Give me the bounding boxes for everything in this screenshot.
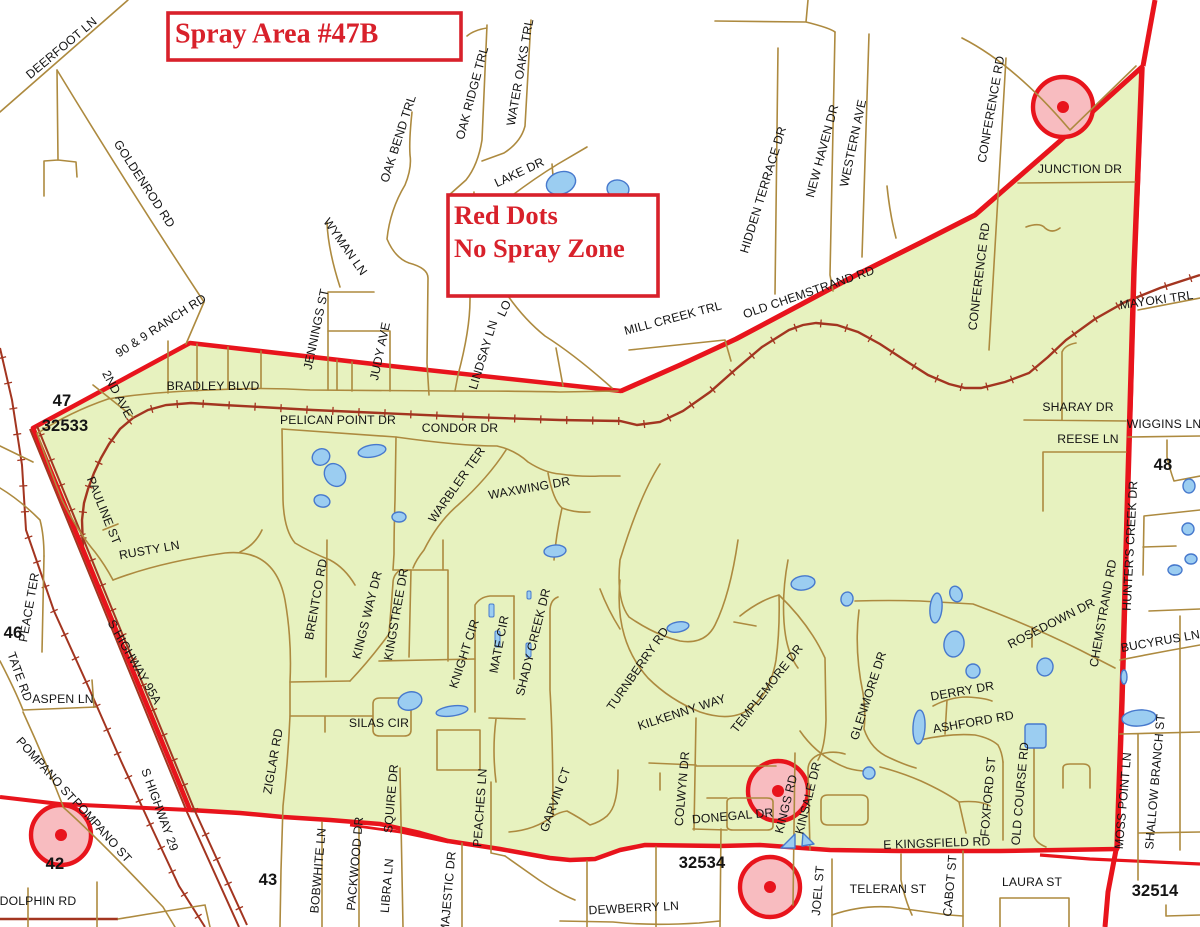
svg-text:CABOT ST: CABOT ST — [940, 854, 959, 917]
svg-text:BRADLEY BLVD: BRADLEY BLVD — [167, 379, 260, 393]
svg-text:OAK BEND TRL: OAK BEND TRL — [377, 93, 418, 184]
svg-text:LAKE DR: LAKE DR — [492, 155, 546, 190]
svg-text:PACKWOOD DR: PACKWOOD DR — [344, 816, 366, 911]
svg-text:No Spray Zone: No Spray Zone — [454, 233, 625, 263]
svg-text:WYMAN LN: WYMAN LN — [320, 215, 370, 278]
svg-text:47: 47 — [53, 392, 72, 410]
svg-text:LAURA ST: LAURA ST — [1002, 875, 1063, 889]
svg-text:MILL CREEK TRL: MILL CREEK TRL — [623, 298, 724, 338]
svg-text:NEW HAVEN DR: NEW HAVEN DR — [803, 103, 841, 199]
svg-text:WIGGINS LN: WIGGINS LN — [1127, 417, 1200, 431]
svg-text:42: 42 — [46, 855, 65, 873]
svg-text:ASPEN LN: ASPEN LN — [32, 692, 93, 706]
svg-text:32514: 32514 — [1132, 882, 1179, 900]
svg-text:CONDOR DR: CONDOR DR — [422, 421, 499, 435]
svg-text:48: 48 — [1154, 456, 1173, 474]
svg-text:32534: 32534 — [679, 854, 726, 872]
svg-text:Spray Area #47B: Spray Area #47B — [175, 19, 378, 50]
svg-text:MAJESTIC DR: MAJESTIC DR — [437, 851, 458, 927]
svg-text:LIBRA LN: LIBRA LN — [378, 858, 397, 914]
svg-text:46: 46 — [4, 624, 23, 642]
svg-text:BOBWHITE LN: BOBWHITE LN — [307, 827, 328, 914]
svg-text:JOEL ST: JOEL ST — [809, 865, 827, 916]
svg-text:DEWBERRY LN: DEWBERRY LN — [588, 899, 679, 918]
svg-text:REESE LN: REESE LN — [1057, 432, 1118, 446]
svg-text:Red Dots: Red Dots — [454, 200, 558, 230]
svg-text:HIDDEN TERRACE DR: HIDDEN TERRACE DR — [737, 125, 789, 255]
svg-text:SILAS CIR: SILAS CIR — [349, 716, 409, 730]
svg-text:POMPANO ST: POMPANO ST — [13, 734, 78, 804]
svg-text:DEERFOOT LN: DEERFOOT LN — [23, 14, 99, 81]
svg-text:PELICAN POINT DR: PELICAN POINT DR — [280, 413, 396, 427]
svg-text:WATER OAKS TRL: WATER OAKS TRL — [504, 18, 537, 127]
svg-text:SHARAY DR: SHARAY DR — [1042, 400, 1113, 414]
svg-text:BUCYRUS LN: BUCYRUS LN — [1120, 627, 1200, 655]
svg-text:JUNCTION DR: JUNCTION DR — [1038, 162, 1122, 176]
svg-text:43: 43 — [259, 871, 278, 889]
svg-text:TELERAN ST: TELERAN ST — [850, 882, 927, 896]
svg-text:DOLPHIN RD: DOLPHIN RD — [0, 894, 76, 908]
svg-text:32533: 32533 — [42, 417, 89, 435]
svg-text:TATE RD: TATE RD — [4, 650, 35, 703]
svg-text:GOLDENROD RD: GOLDENROD RD — [111, 138, 178, 231]
